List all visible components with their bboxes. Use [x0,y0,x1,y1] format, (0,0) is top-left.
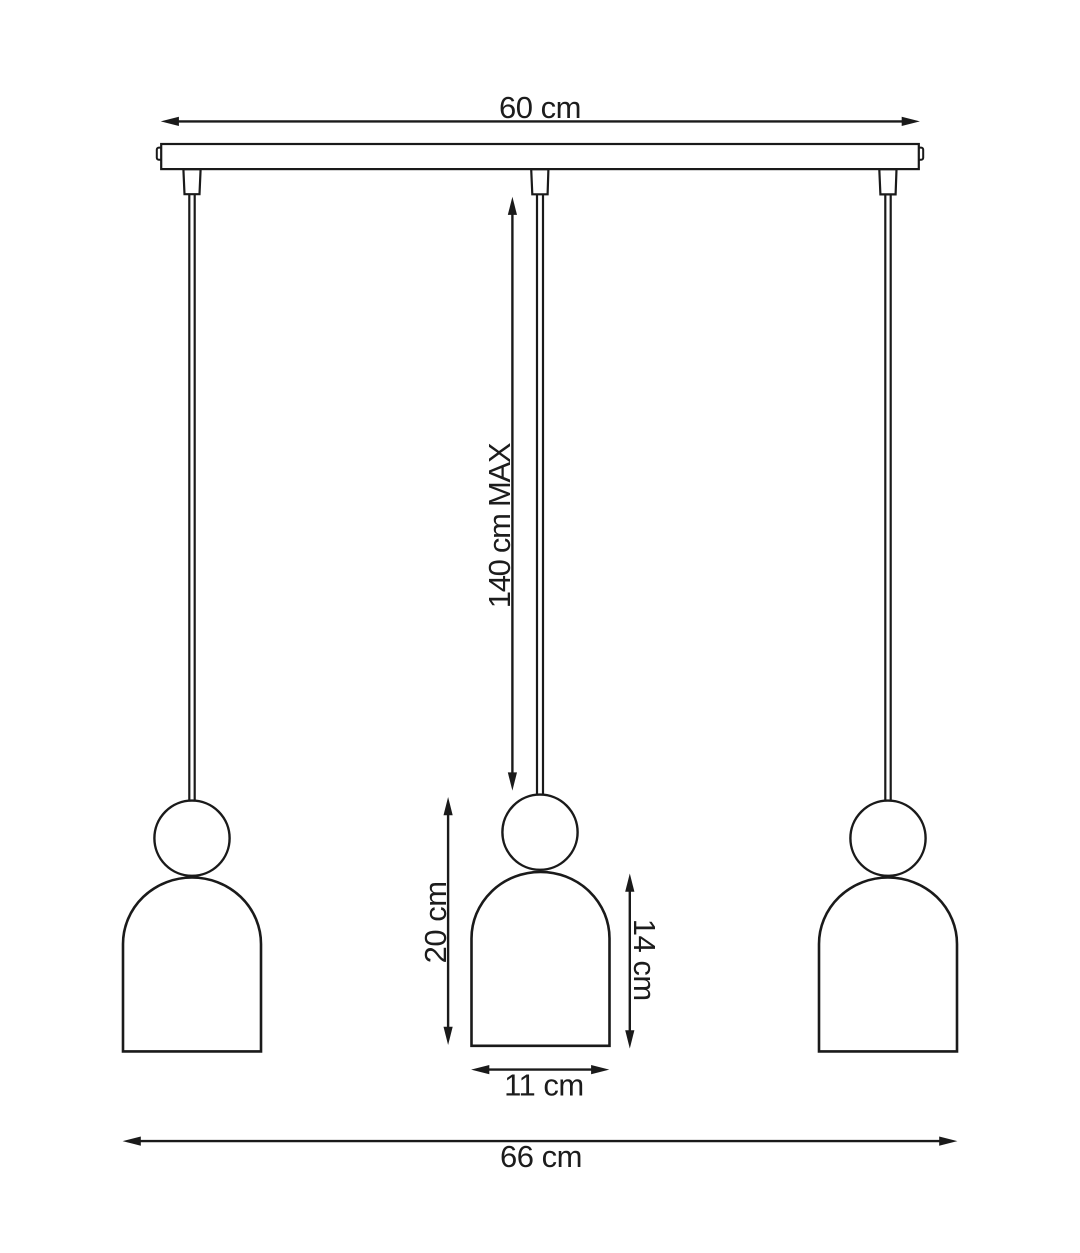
svg-text:14 cm: 14 cm [627,919,662,1001]
svg-text:66 cm: 66 cm [500,1139,582,1174]
svg-text:60 cm: 60 cm [499,90,581,125]
svg-text:11 cm: 11 cm [504,1068,584,1103]
svg-text:140 cm MAX: 140 cm MAX [482,442,517,608]
svg-text:20 cm: 20 cm [418,881,453,963]
